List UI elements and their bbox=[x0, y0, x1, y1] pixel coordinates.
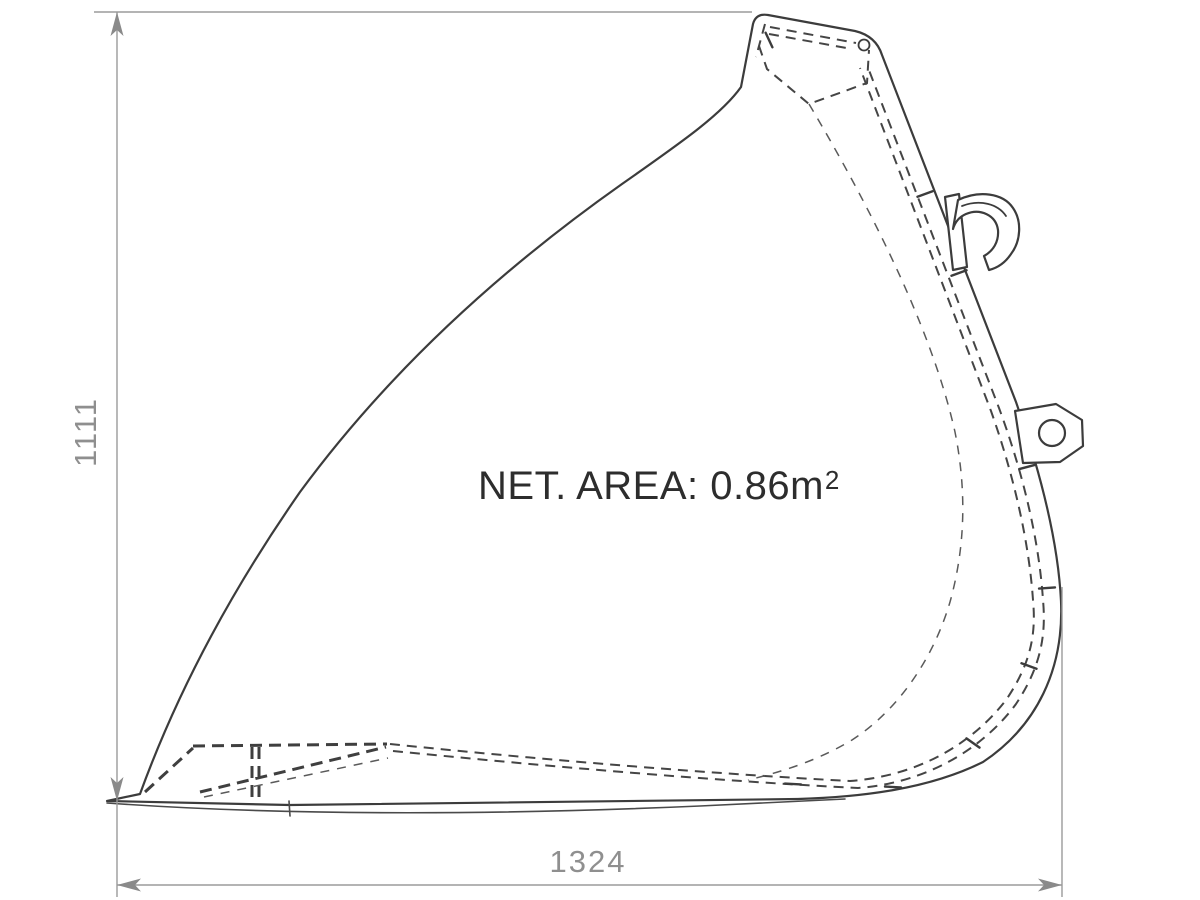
width-dimension-value: 1324 bbox=[550, 844, 627, 879]
weld-tick bbox=[917, 191, 932, 196]
top-bracket-hidden-pentagon bbox=[759, 46, 869, 104]
net-area-annotation: NET. AREA: 0.86m2 bbox=[478, 464, 840, 509]
hidden-lines bbox=[145, 24, 1044, 800]
weld-tick bbox=[785, 784, 801, 785]
weld-tick bbox=[951, 270, 966, 275]
cutting-edge-bottom-line bbox=[107, 799, 845, 813]
mounting-lug bbox=[1015, 404, 1083, 463]
weld-tick bbox=[885, 787, 901, 788]
grab-hook bbox=[945, 194, 1019, 270]
bucket-outline bbox=[107, 15, 1061, 816]
weld-tick bbox=[1039, 587, 1055, 588]
dimension-width: 1324 bbox=[117, 587, 1062, 897]
drawing-canvas: 1111 1324 NET. AREA: 0.86m2 bbox=[0, 0, 1200, 900]
mounting-lug-hole bbox=[1039, 420, 1065, 446]
weld-ticks bbox=[766, 33, 1055, 788]
net-area-label: NET. AREA: 0.86m bbox=[478, 464, 824, 508]
heel-bracket-inner-hidden-line bbox=[204, 758, 388, 797]
height-dimension-value: 1111 bbox=[68, 397, 103, 467]
inner-shell-hidden-line bbox=[748, 104, 963, 780]
bucket-technical-drawing: 1111 1324 bbox=[0, 0, 1200, 900]
weld-tick bbox=[1019, 465, 1034, 469]
heel-bracket-hidden-lines bbox=[145, 744, 387, 800]
top-bracket-hole bbox=[859, 40, 870, 51]
net-area-exponent: 2 bbox=[825, 465, 840, 495]
shell-band-hidden-line-inner bbox=[390, 68, 1034, 781]
shell-band-hidden-line-outer bbox=[393, 65, 1044, 788]
bucket-body-outline bbox=[107, 15, 1061, 805]
cutting-edge-tick bbox=[289, 801, 290, 816]
dimension-height: 1111 bbox=[68, 12, 752, 897]
